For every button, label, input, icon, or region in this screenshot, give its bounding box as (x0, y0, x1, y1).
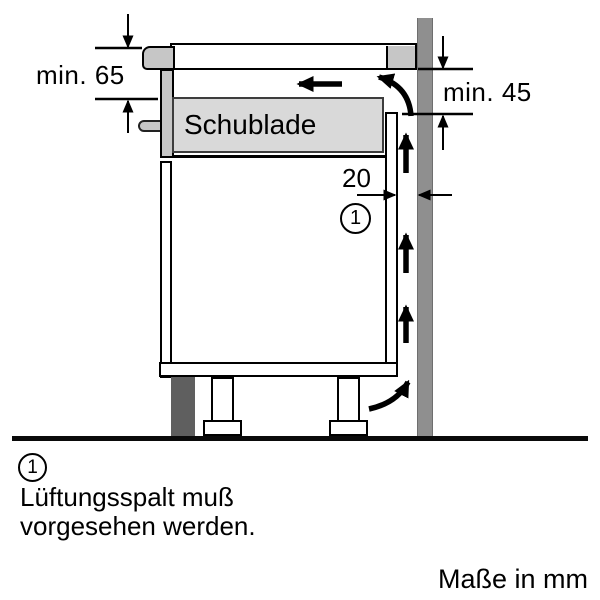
floor-line (12, 436, 588, 441)
airflow-curve-bottom-arrow (369, 382, 408, 409)
cabinet-bottom-panel (159, 362, 398, 377)
legend-callout-badge: 1 (18, 453, 47, 482)
min65-label: min. 65 (36, 60, 125, 91)
cabinet-foot-left (203, 420, 242, 436)
installation-diagram: Schublade (0, 0, 600, 600)
hob-front-edge (142, 46, 175, 70)
legend-callout-number: 1 (27, 457, 38, 479)
min45-label: min. 45 (443, 77, 532, 108)
cabinet-foot-right (329, 420, 368, 436)
cabinet-leg-right (337, 377, 360, 423)
gap20-label: 20 (342, 163, 371, 194)
callout-1-badge: 1 (340, 203, 371, 234)
drawer-box: Schublade (172, 97, 384, 153)
drawer-label: Schublade (184, 109, 316, 141)
worktop (170, 43, 417, 70)
units-note: Maße in mm (438, 564, 588, 595)
drawer-bottom-rail (172, 155, 385, 158)
cabinet-back-panel (385, 112, 398, 364)
worktop-end-block (386, 46, 415, 68)
legend-note-line2: vorgesehen werden. (20, 511, 256, 542)
cabinet-front-panel (160, 161, 172, 378)
legend-note-line1: Lüftungsspalt muß (20, 482, 234, 513)
wall-panel (417, 18, 433, 436)
callout-1-number: 1 (350, 207, 361, 230)
cabinet-leg-left (211, 377, 234, 423)
plinth-panel (171, 377, 195, 436)
